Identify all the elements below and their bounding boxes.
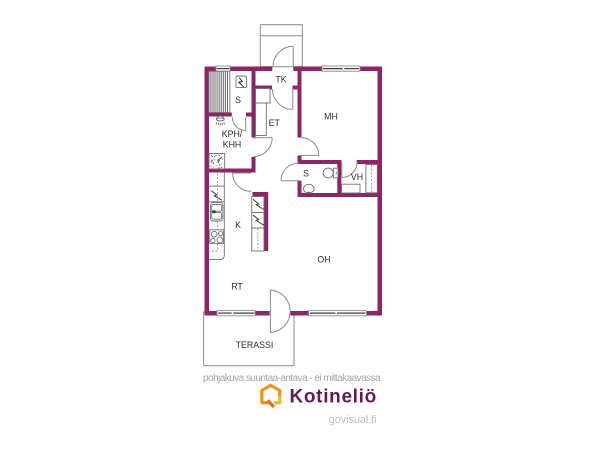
- svg-text:KHH: KHH: [223, 139, 242, 149]
- svg-text:VH: VH: [351, 172, 363, 182]
- svg-text:ET: ET: [269, 118, 281, 128]
- svg-text:S: S: [235, 95, 241, 105]
- svg-text:MH: MH: [324, 112, 338, 122]
- svg-text:govisual.fi: govisual.fi: [329, 414, 377, 426]
- svg-text:KPH/: KPH/: [222, 129, 243, 139]
- svg-text:K: K: [235, 220, 241, 230]
- svg-text:TK: TK: [275, 74, 286, 84]
- svg-text:S: S: [303, 169, 309, 179]
- svg-text:pohjakuva suuntaa-antava - ei: pohjakuva suuntaa-antava - ei mittakaava…: [203, 373, 381, 384]
- svg-text:Kotineliö: Kotineliö: [290, 386, 377, 407]
- svg-text:OH: OH: [317, 255, 330, 265]
- svg-text:TERASSI: TERASSI: [236, 340, 274, 350]
- svg-text:RT: RT: [231, 282, 243, 292]
